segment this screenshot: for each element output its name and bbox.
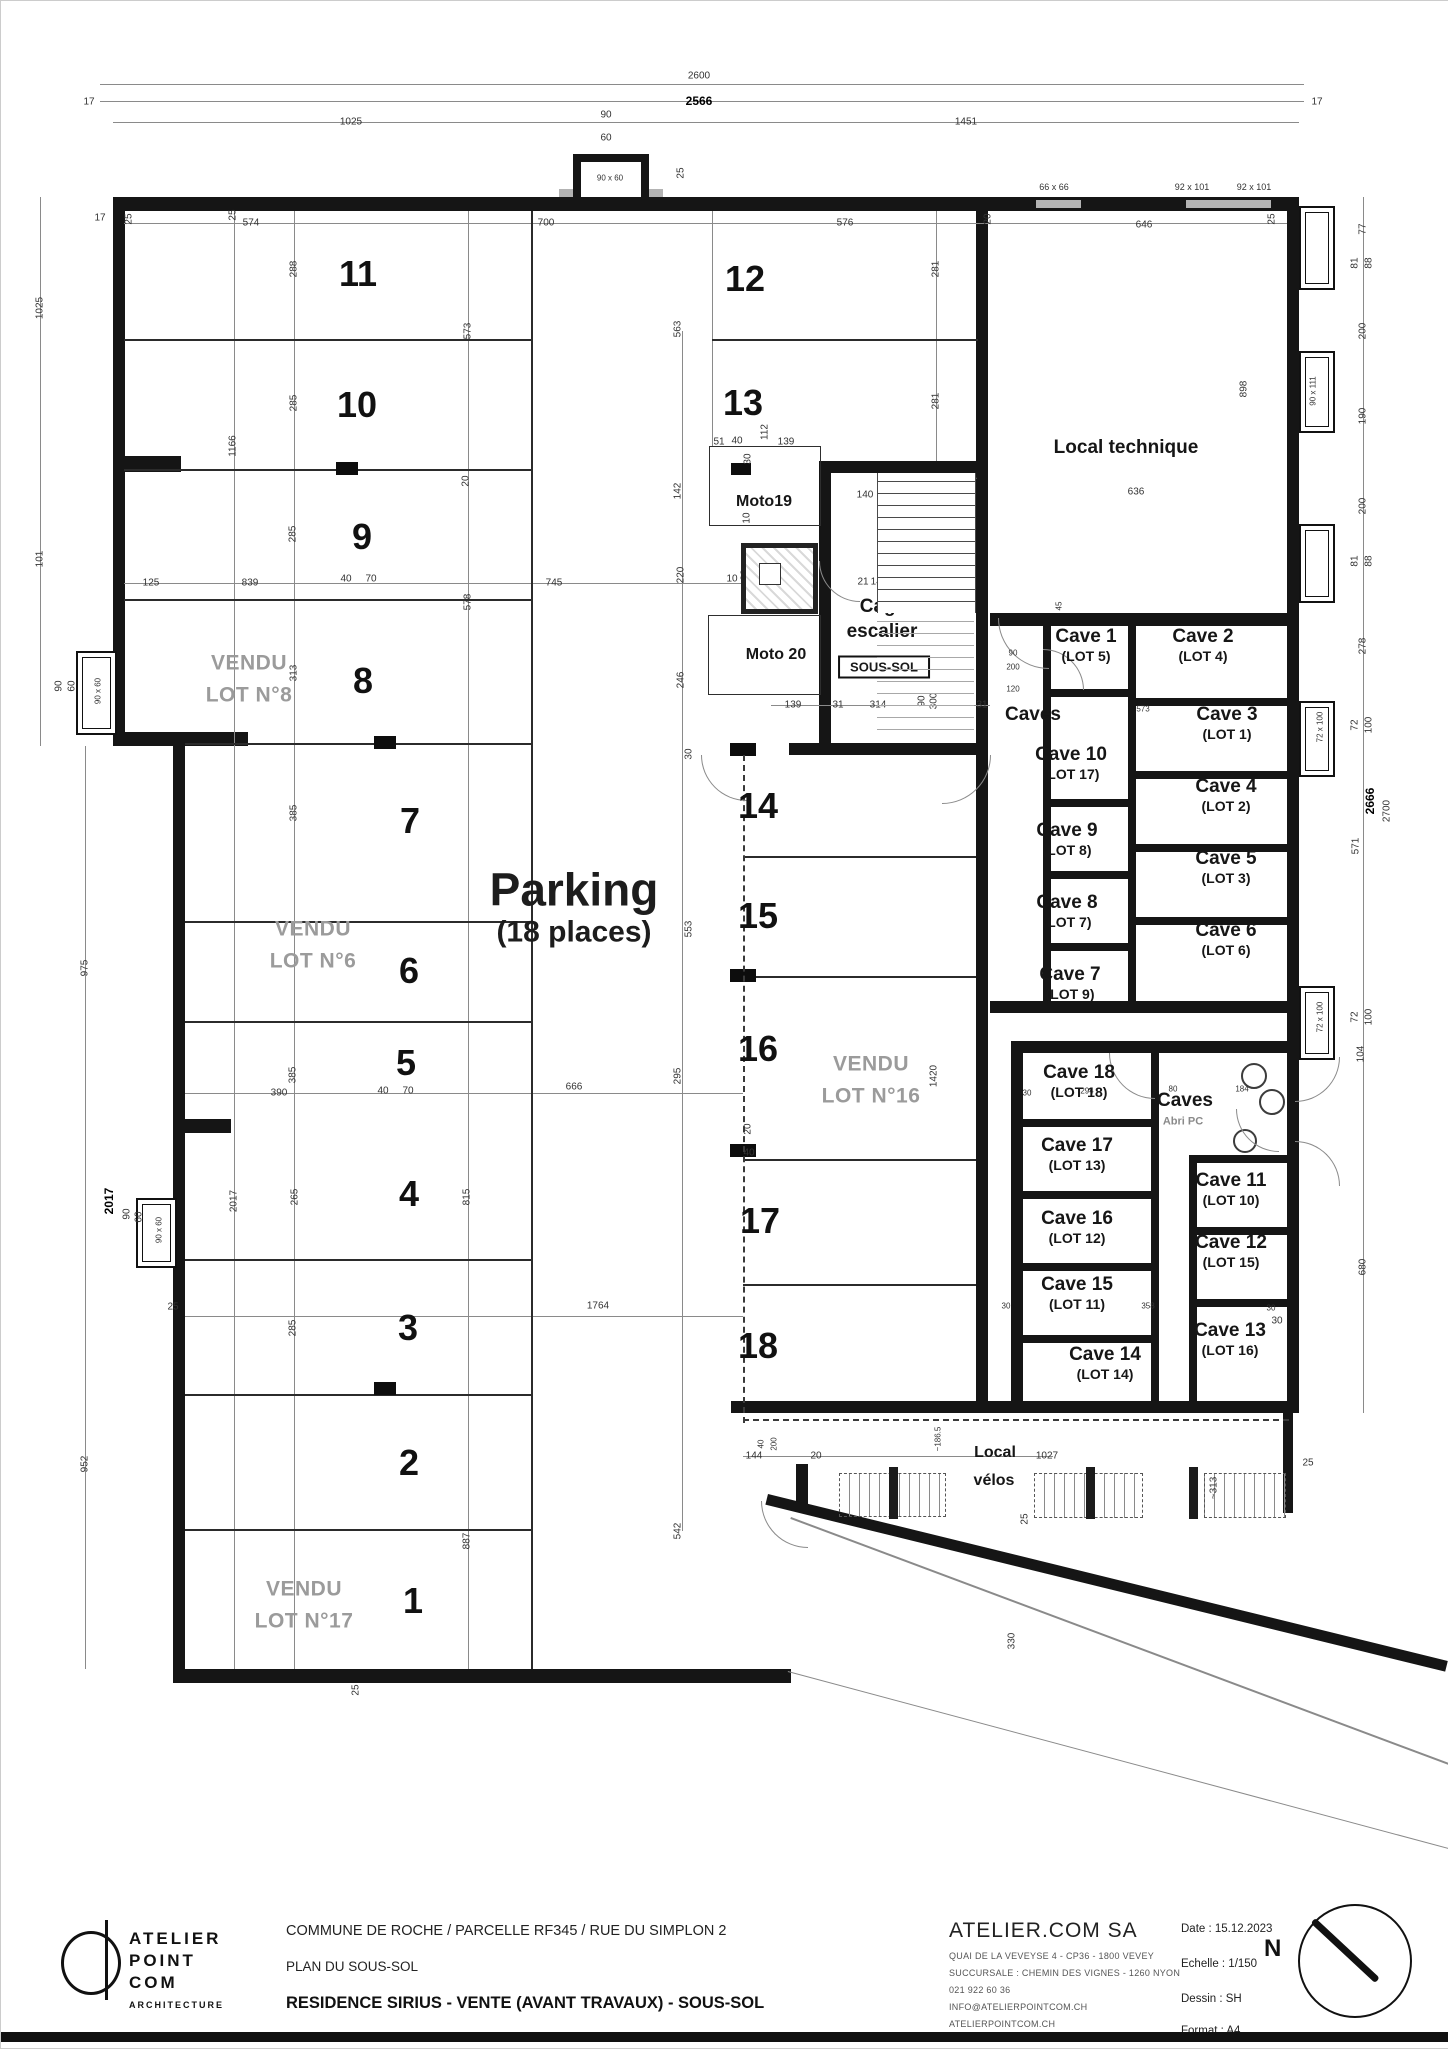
vendu-line: VENDU [255, 1574, 354, 1606]
dim-label: 17 [94, 213, 105, 224]
room-label: Local technique [1054, 437, 1199, 459]
room-lot-label: (LOT 7) [1036, 914, 1097, 930]
parking-spot-number: 13 [723, 382, 763, 424]
floor-plan-page: 26001725661710259060145190 x 602566 x 66… [0, 0, 1448, 2049]
wall [1043, 943, 1136, 951]
room-lot-label: (LOT 18) [1043, 1084, 1115, 1100]
dim-label: 700 [538, 218, 555, 229]
dim-label: 17 [83, 97, 94, 108]
dim-label: 21 [857, 577, 868, 588]
moto-box [709, 446, 821, 526]
dim-label: 120 [1006, 685, 1019, 694]
dim-label: 17 [1311, 97, 1322, 108]
dim-label: 20 [810, 1451, 821, 1462]
parking-spot-number: 17 [740, 1200, 780, 1242]
dim-label: 31 [976, 700, 987, 711]
dim-label: 30 [1002, 1302, 1011, 1311]
dim-label: 542 [673, 1523, 684, 1540]
room-label: Cave 2(LOT 4) [1172, 626, 1233, 664]
dim-label: 288 [289, 261, 300, 278]
stair-treads [877, 473, 976, 613]
company-site: ATELIERPOINTCOM.CH [949, 2019, 1055, 2029]
wall [1189, 1155, 1287, 1163]
dim-label: 88 [1364, 257, 1375, 268]
vendu-line: VENDU [270, 914, 357, 946]
dim-label: 51 [713, 437, 724, 448]
dim-label: 220 [676, 567, 687, 584]
dim-label: 90 x 60 [94, 678, 103, 704]
dim-label: 40 [377, 1086, 388, 1097]
dim-label: 142 [673, 483, 684, 500]
dim-label: 90 [1009, 649, 1018, 658]
dim-label: 25 [1302, 1458, 1313, 1469]
rack-post [1189, 1467, 1198, 1519]
wall [573, 154, 649, 162]
parking-spot-number: 7 [400, 800, 420, 842]
dim-label: 90 x 111 [1309, 376, 1318, 406]
dimension-line [788, 1671, 1448, 1851]
dim-label: 574 [243, 218, 260, 229]
wall [731, 1401, 1299, 1413]
vendu-lot-line: LOT N°17 [255, 1605, 354, 1637]
dim-label: 77 [1358, 223, 1369, 234]
north-label: N [1264, 1935, 1281, 1963]
dimension-line [100, 84, 1304, 85]
room-label: Cave 8(LOT 7) [1036, 892, 1097, 930]
dim-label: 573 [1136, 705, 1149, 714]
dim-label: 72 [1350, 719, 1361, 730]
rack-post [889, 1467, 898, 1519]
dim-label: 571 [1351, 838, 1362, 855]
dim-label: 385 [288, 1067, 299, 1084]
dimension-line [468, 211, 469, 1669]
logo-icon [61, 1931, 121, 1995]
room-label: Moto 20 [746, 646, 806, 664]
dim-label: 666 [566, 1082, 583, 1093]
dim-label: 563 [673, 321, 684, 338]
dim-label: 1420 [929, 1065, 940, 1087]
dim-label: 45 [1055, 602, 1064, 611]
room-label: Abri PC [1163, 1116, 1203, 1129]
dim-label: 125 [143, 578, 160, 589]
parking-spot-number: 11 [339, 253, 377, 295]
dim-label: 20 [743, 1123, 754, 1134]
wall [990, 1001, 1299, 1013]
wall [819, 461, 988, 473]
dim-label: 20 [461, 475, 472, 486]
wall [1023, 1335, 1151, 1343]
wall-hatch [1186, 200, 1271, 208]
dim-label: 101 [35, 551, 46, 568]
dim-label: ~313 [1209, 1477, 1220, 1500]
logo-text-3: COM [129, 1973, 178, 1993]
vendu-lot-line: LOT N°8 [206, 679, 293, 711]
dim-label: 358 [1141, 1302, 1154, 1311]
dim-label: 578 [463, 594, 474, 611]
dim-label: 30 [1267, 1304, 1276, 1313]
door-swing-arc [998, 618, 1049, 669]
room-label: Local [974, 1444, 1016, 1462]
dim-label: 1451 [955, 117, 977, 128]
dim-label: 2566 [686, 94, 713, 108]
dim-label: 30 [1023, 1089, 1032, 1098]
room-label: Moto19 [736, 493, 792, 511]
room-label: Cave 1(LOT 5) [1055, 626, 1116, 664]
dim-label: 25 [1267, 213, 1278, 224]
dim-label: 2700 [1382, 800, 1393, 822]
dim-label: 1025 [340, 117, 362, 128]
wheel-stop [374, 736, 396, 749]
room-label: Cave 17(LOT 13) [1041, 1135, 1113, 1173]
stall-divider [185, 1394, 531, 1396]
stall-divider [185, 1259, 531, 1261]
parking-spot-number: 8 [353, 660, 373, 702]
room-label: Cave 10(LOT 17) [1035, 744, 1107, 782]
wheel-stop [336, 462, 358, 475]
room-lot-label: (LOT 14) [1069, 1366, 1141, 1382]
window [1299, 206, 1335, 290]
stall-divider [743, 1159, 976, 1161]
project-plan-name: PLAN DU SOUS-SOL [286, 1959, 418, 1974]
dimension-line [234, 211, 235, 1669]
dim-label: 278 [1358, 638, 1369, 655]
lane-dashed-line [743, 1419, 1289, 1421]
room-label: Cave 3(LOT 1) [1196, 704, 1257, 742]
dim-label: 553 [684, 921, 695, 938]
dim-label: 25 [1020, 1513, 1031, 1524]
vendu-label: VENDULOT N°6 [270, 914, 357, 977]
dim-label: 295 [673, 1068, 684, 1085]
dim-label: 285 [289, 395, 300, 412]
wall-hatch [1036, 200, 1081, 208]
door-swing-arc [1295, 1057, 1340, 1102]
dim-label: 70 [402, 1086, 413, 1097]
room-label: Cave 4(LOT 2) [1195, 776, 1256, 814]
parking-spot-number: 4 [399, 1173, 419, 1215]
dim-label: 281 [931, 393, 942, 410]
dim-label: 1166 [228, 435, 239, 457]
wall [1023, 1119, 1151, 1127]
wall [1287, 197, 1299, 1413]
dim-label: 246 [676, 672, 687, 689]
dim-label: 2017 [102, 1188, 116, 1215]
rack-post [1086, 1467, 1095, 1519]
dim-label: 2017 [229, 1190, 240, 1212]
parking-spot-number: 5 [396, 1042, 416, 1084]
room-label: Cave 15(LOT 11) [1041, 1274, 1113, 1312]
stall-divider [743, 976, 976, 978]
wall [173, 1669, 791, 1683]
dim-label: 745 [546, 578, 563, 589]
dim-label: 573 [463, 323, 474, 340]
dim-label: 40 [757, 1440, 766, 1449]
vendu-label: VENDULOT N°17 [255, 1574, 354, 1637]
stall-divider [185, 743, 531, 745]
dimension-line [185, 1316, 743, 1317]
room-lot-label: (LOT 11) [1041, 1296, 1113, 1312]
wall [1043, 871, 1136, 879]
room-lot-label: (LOT 5) [1055, 648, 1116, 664]
dim-label: 898 [1239, 381, 1250, 398]
room-label: Cave 13(LOT 16) [1194, 1320, 1266, 1358]
wall [1011, 1041, 1289, 1053]
dim-label: 100 [1364, 717, 1375, 734]
parking-spot-number: 14 [738, 785, 778, 827]
vendu-lot-line: LOT N°6 [270, 945, 357, 977]
dim-label: 139 [785, 700, 802, 711]
dim-label: 92 x 101 [1237, 182, 1272, 192]
dim-label: ~186.5 [934, 1427, 943, 1452]
dim-label: 70 [365, 574, 376, 585]
dimension-line [113, 122, 1299, 123]
room-lot-label: (LOT 1) [1196, 726, 1257, 742]
meta-drawn: Dessin : SH [1181, 1993, 1242, 2005]
dimension-line [124, 223, 1287, 224]
company-addr-1: QUAI DE LA VEVEYSE 4 - CP36 - 1800 VEVEY [949, 1951, 1154, 1961]
room-label: Caves [1157, 1090, 1213, 1112]
parking-spot-number: 10 [337, 384, 377, 426]
dim-label: 2666 [1363, 788, 1377, 815]
meta-date: Date : 15.12.2023 [1181, 1923, 1272, 1935]
room-lot-label: (LOT 4) [1172, 648, 1233, 664]
wall [796, 1464, 808, 1504]
dim-label: 139 [778, 437, 795, 448]
wall [1023, 1191, 1151, 1199]
dimension-line [85, 746, 86, 1669]
dim-label: 72 x 100 [1316, 712, 1325, 743]
dim-label: 90 [54, 680, 65, 691]
room-label: Cave 5(LOT 3) [1195, 848, 1256, 886]
dim-label: 285 [288, 526, 299, 543]
room-lot-label: (LOT 2) [1195, 798, 1256, 814]
room-lot-label: (LOT 3) [1195, 870, 1256, 886]
dim-label: 952 [80, 1456, 91, 1473]
company-phone: 021 922 60 36 [949, 1985, 1010, 1995]
dim-label: 90 [122, 1208, 133, 1219]
room-lot-label: (LOT 15) [1195, 1254, 1267, 1270]
dim-label: 1764 [587, 1301, 609, 1312]
logo-icon-bar [105, 1920, 108, 2000]
dim-label: 90 [600, 110, 611, 121]
dim-label: 25 [676, 167, 687, 178]
dim-label: 281 [931, 261, 942, 278]
wall-hatch [559, 189, 573, 197]
stall-divider [185, 921, 531, 923]
dim-label: 81 [1350, 257, 1361, 268]
room-lot-label: (LOT 17) [1035, 766, 1107, 782]
dim-label: 72 x 100 [1316, 1002, 1325, 1033]
vendu-label: VENDULOT N°16 [822, 1049, 921, 1112]
wall [976, 197, 988, 755]
dim-label: 25 [124, 213, 135, 224]
dim-label: 887 [462, 1533, 473, 1550]
dim-label: 72 [1350, 1011, 1361, 1022]
vendu-line: VENDU [822, 1049, 921, 1081]
dim-label: 88 [1364, 555, 1375, 566]
dim-label: 200 [1358, 498, 1369, 515]
dim-label: 200 [1006, 663, 1019, 672]
dim-label: 90 x 60 [597, 174, 623, 183]
dim-label: 200 [770, 1437, 779, 1450]
dim-label: 815 [462, 1189, 473, 1206]
room-label: Cave 12(LOT 15) [1195, 1232, 1267, 1270]
project-commune: COMMUNE DE ROCHE / PARCELLE RF345 / RUE … [286, 1923, 726, 1939]
dim-label: 576 [837, 218, 854, 229]
dim-label: 200 [1358, 323, 1369, 340]
door-swing-arc [1295, 1141, 1340, 1186]
dimension-line [124, 583, 761, 584]
dim-label: 25 [351, 1684, 362, 1695]
dim-label: 636 [1128, 487, 1145, 498]
wheel-stop [374, 1382, 396, 1395]
stall-divider [124, 469, 531, 471]
window [1299, 524, 1335, 603]
parking-spot-number: 6 [399, 950, 419, 992]
wall [573, 154, 581, 197]
room-lot-label: (LOT 9) [1039, 986, 1100, 1002]
dim-label: 104 [1356, 1046, 1367, 1063]
room-lot-label: (LOT 12) [1041, 1230, 1113, 1246]
door-swing-arc [761, 1501, 808, 1548]
dim-label: 184 [1235, 1085, 1248, 1094]
parking-spot-number: 2 [399, 1442, 419, 1484]
dim-label: 30 [684, 748, 695, 759]
dim-label: 112 [760, 424, 771, 440]
dim-label: 144 [746, 1451, 763, 1462]
room-label: vélos [974, 1472, 1015, 1490]
dimension-line [936, 211, 937, 461]
dim-label: 30 [1271, 1316, 1282, 1327]
room-label: Cave 11(LOT 10) [1196, 1170, 1267, 1208]
dim-label: 25 [228, 209, 239, 220]
dim-label: 40 [340, 574, 351, 585]
dim-label: 975 [80, 960, 91, 977]
company-addr-2: SUCCURSALE : CHEMIN DES VIGNES - 1260 NY… [949, 1968, 1180, 1978]
page-bottom-rule [1, 2032, 1448, 2042]
wall [765, 1494, 1447, 1672]
vendu-line: VENDU [206, 648, 293, 680]
room-lot-label: (LOT 6) [1195, 942, 1256, 958]
dim-label: 385 [289, 805, 300, 822]
room-label: Cave 9(LOT 8) [1036, 820, 1097, 858]
dim-label: 60 [134, 1211, 145, 1222]
wall [1043, 799, 1136, 807]
room-lot-label: (LOT 13) [1041, 1157, 1113, 1173]
wall [976, 755, 988, 1413]
wall [1011, 1041, 1023, 1413]
dim-label: 10 [742, 512, 753, 523]
parking-spot-number: 16 [738, 1028, 778, 1070]
dim-label: 40 [743, 1148, 754, 1159]
dim-label: 60 [600, 133, 611, 144]
dim-label: 839 [242, 578, 259, 589]
dim-label: 1025 [35, 297, 46, 319]
dimension-line [185, 1093, 743, 1094]
dim-label: 390 [271, 1088, 288, 1099]
dim-label: 66 x 66 [1039, 182, 1069, 192]
dim-label: 285 [288, 1320, 299, 1337]
room-label: Cave 18(LOT 18) [1043, 1062, 1115, 1100]
dim-label: 100 [1364, 1009, 1375, 1026]
dim-label: 81 [1350, 555, 1361, 566]
wall [185, 1119, 231, 1133]
wall [641, 154, 649, 197]
stall-divider [743, 856, 976, 858]
stall-divider [712, 339, 978, 341]
logo-text-1: ATELIER [129, 1929, 221, 1949]
dim-label: 20 [983, 213, 994, 224]
parking-count: (18 places) [490, 913, 659, 952]
company-name: ATELIER.COM SA [949, 1919, 1138, 1943]
dim-label: 330 [1007, 1633, 1018, 1650]
room-label: Cave 6(LOT 6) [1195, 920, 1256, 958]
stall-divider [743, 1284, 976, 1286]
wall-hatch [649, 189, 663, 197]
room-label: Cave 14(LOT 14) [1069, 1344, 1141, 1382]
room-lot-label: (LOT 8) [1036, 842, 1097, 858]
wall [789, 743, 988, 755]
dim-label: 31 [832, 700, 843, 711]
room-lot-label: (LOT 10) [1196, 1192, 1267, 1208]
dim-label: 40 [731, 436, 742, 447]
dim-label: 60 [67, 680, 78, 691]
parking-spot-number: 9 [352, 516, 372, 558]
wall [1023, 1263, 1151, 1271]
stair-treads-dashed [877, 613, 974, 741]
parking-spot-number: 12 [725, 258, 765, 300]
dim-label: 30 [743, 453, 754, 464]
dim-label: 646 [1136, 220, 1153, 231]
room-label: Cave 7(LOT 9) [1039, 964, 1100, 1002]
stall-divider [185, 1021, 531, 1023]
dim-label: 1027 [1036, 1451, 1058, 1462]
room-label: Cave 16(LOT 12) [1041, 1208, 1113, 1246]
parking-title: Parking [490, 867, 659, 913]
parking-spot-number: 18 [738, 1325, 778, 1367]
logo-text-sub: ARCHITECTURE [129, 2000, 224, 2010]
dim-label: 265 [290, 1189, 301, 1206]
parking-spot-number: 3 [398, 1307, 418, 1349]
meta-scale: Echelle : 1/150 [1181, 1958, 1257, 1970]
company-email: INFO@ATELIERPOINTCOM.CH [949, 2002, 1087, 2012]
parking-area-label: Parking (18 places) [490, 867, 659, 952]
door-swing-arc [1109, 1053, 1155, 1099]
dim-label: 680 [1358, 1259, 1369, 1276]
parking-spot-number: 1 [403, 1580, 423, 1622]
logo-text-2: POINT [129, 1951, 196, 1971]
dim-label: 190 [1358, 408, 1369, 425]
vendu-lot-line: LOT N°16 [822, 1080, 921, 1112]
dim-label: 25 [167, 1302, 178, 1313]
dim-label: 2600 [688, 71, 710, 82]
dim-label: 92 x 101 [1175, 182, 1210, 192]
vendu-label: VENDULOT N°8 [206, 648, 293, 711]
dimension-line [40, 197, 41, 746]
parking-spot-number: 15 [738, 895, 778, 937]
lane-dashed-line [743, 755, 745, 1423]
room-lot-label: (LOT 16) [1194, 1342, 1266, 1358]
room-label: Caves [1005, 704, 1061, 726]
elevator-icon [759, 563, 781, 585]
dim-label: 90 x 60 [155, 1217, 164, 1243]
project-title: RESIDENCE SIRIUS - VENTE (AVANT TRAVAUX)… [286, 1994, 764, 2013]
dimension-line [712, 211, 713, 446]
wall [113, 197, 1299, 211]
dim-label: 10 [726, 574, 737, 585]
dim-label: 140 [857, 490, 874, 501]
wall [1043, 689, 1136, 697]
stall-divider [185, 1529, 531, 1531]
